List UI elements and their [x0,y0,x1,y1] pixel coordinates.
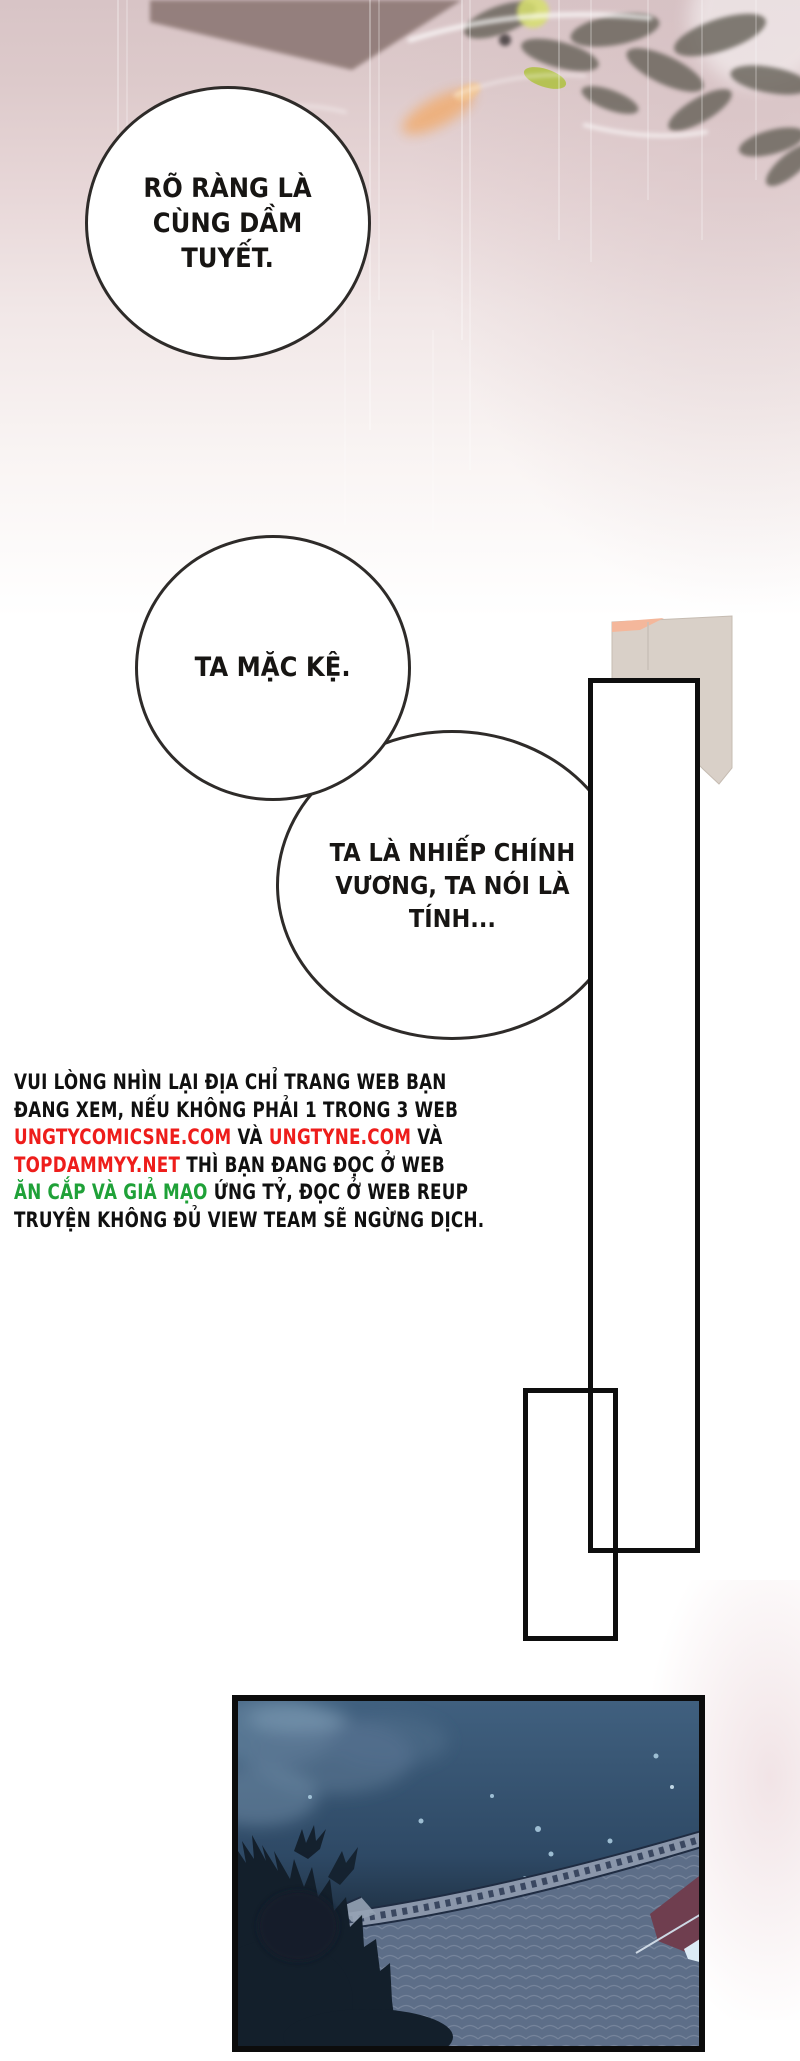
notice-warning-text: ĂN CẮP VÀ GIẢ MẠO [14,1180,208,1205]
bubble-1-text: RÕ RÀNG LÀ CÙNG DẦM TUYẾT. [144,171,312,276]
bubble-3-text: TA LÀ NHIẾP CHÍNH VƯƠNG, TA NÓI LÀ TÍNH.… [329,836,575,935]
bubble-3-line-1: TA LÀ NHIẾP CHÍNH [329,836,575,869]
notice-line-1: VUI LÒNG NHÌN LẠI ĐỊA CHỈ TRANG WEB BẠN [14,1069,484,1097]
bubble-1-line-1: RÕ RÀNG LÀ [144,171,312,206]
bubble-2-line-1: TA MẶC KỆ. [195,651,351,685]
green-leaf [521,63,568,94]
speech-bubble-2: TA MẶC KỆ. [135,535,411,801]
bokeh-light-small [499,34,511,46]
notice-line-2: ĐANG XEM, NẾU KHÔNG PHẢI 1 TRONG 3 WEB [14,1097,484,1125]
night-scene-art [238,1701,699,2046]
bubble-3-line-3: TÍNH... [329,902,575,935]
pennant-salmon-edge [612,618,664,632]
comic-page: TA LÀ NHIẾP CHÍNH VƯƠNG, TA NÓI LÀ TÍNH.… [0,0,800,2061]
small-panel-frame [523,1388,618,1641]
bubble-1-line-3: TUYẾT. [144,241,312,276]
bubble-3-line-2: VƯƠNG, TA NÓI LÀ [329,869,575,902]
notice-site-link: UNGTYCOMICSNE.COM [14,1125,231,1150]
notice-text: VÀ [411,1125,442,1150]
anti-piracy-notice: VUI LÒNG NHÌN LẠI ĐỊA CHỈ TRANG WEB BẠN … [14,1069,617,1235]
notice-site-link: TOPDAMMYY.NET [14,1153,180,1178]
notice-text: ỨNG TỶ, ĐỌC Ở WEB REUP [208,1180,468,1205]
pink-tint-top-right [400,0,800,620]
bubble-2-text: TA MẶC KỆ. [195,651,351,685]
notice-text: VUI LÒNG NHÌN LẠI ĐỊA CHỈ TRANG WEB BẠN [14,1070,447,1095]
leaf-cluster [460,0,800,193]
notice-text: ĐANG XEM, NẾU KHÔNG PHẢI 1 TRONG 3 WEB [14,1098,458,1123]
speech-bubble-1: RÕ RÀNG LÀ CÙNG DẦM TUYẾT. [85,86,371,360]
notice-line-3: UNGTYCOMICSNE.COM VÀ UNGTYNE.COM VÀ [14,1124,484,1152]
notice-line-6: TRUYỆN KHÔNG ĐỦ VIEW TEAM SẼ NGỪNG DỊCH. [14,1207,484,1235]
notice-site-link: UNGTYNE.COM [269,1125,411,1150]
light-glow [690,0,800,88]
bubble-1-line-2: CÙNG DẦM [144,206,312,241]
notice-text: VÀ [231,1125,268,1150]
notice-text: TRUYỆN KHÔNG ĐỦ VIEW TEAM SẼ NGỪNG DỊCH. [14,1208,484,1233]
night-scene-panel [232,1695,705,2052]
branch-shadow-shape [150,0,462,70]
notice-line-5: ĂN CẮP VÀ GIẢ MẠO ỨNG TỶ, ĐỌC Ở WEB REUP [14,1179,484,1207]
notice-text: THÌ BẠN ĐANG ĐỌC Ở WEB [180,1153,445,1178]
bokeh-light [517,0,549,28]
notice-line-4: TOPDAMMYY.NET THÌ BẠN ĐANG ĐỌC Ở WEB [14,1152,484,1180]
orange-glow [396,79,484,143]
